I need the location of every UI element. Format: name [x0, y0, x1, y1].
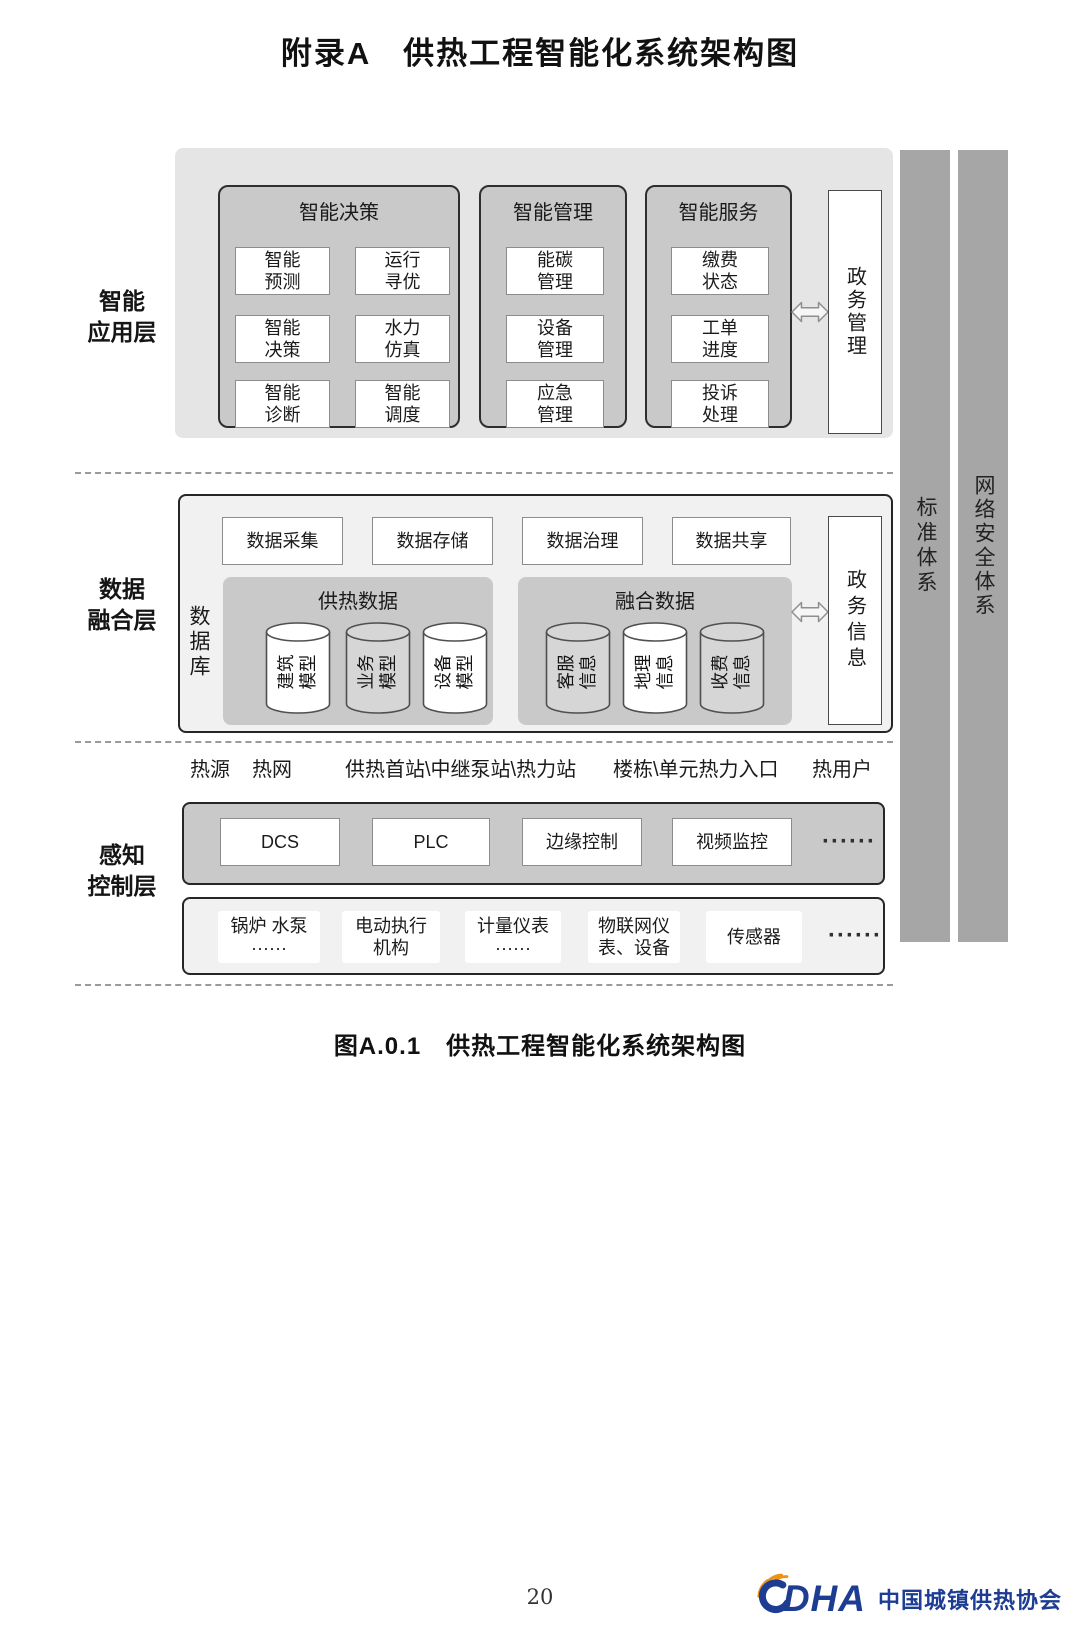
cylinder-label: 客服 信息: [546, 628, 610, 716]
database-label-wrap: 数据库: [184, 592, 212, 692]
group-title: 智能服务: [647, 187, 790, 225]
control-box-edge-control: 边缘控制: [522, 818, 642, 866]
device-ellipsis: ······: [828, 922, 882, 950]
application-layer-label: 智能 应用层: [72, 286, 172, 348]
page-title: 附录A 供热工程智能化系统架构图: [0, 28, 1080, 73]
double-arrow-shape: [792, 303, 828, 322]
cylinder-billing-info: 收费 信息: [697, 621, 767, 715]
cylinder-geographic-info: 地理 信息: [620, 621, 690, 715]
data-layer-label: 数据 融合层: [72, 574, 172, 636]
document-page: 附录A 供热工程智能化系统架构图 智能 应用层 智能决策 智能 预测 运行 寻优…: [0, 0, 1080, 1635]
app-box-smart-prediction: 智能 预测: [235, 247, 330, 295]
layer-divider: [75, 741, 893, 743]
figure-caption: 图A.0.1 供热工程智能化系统架构图: [0, 1026, 1080, 1061]
app-box-work-order-progress: 工单 进度: [671, 315, 769, 363]
data-box-storage: 数据存储: [372, 517, 493, 565]
database-label: 数据库: [183, 605, 213, 680]
group-intelligent-decision: 智能决策 智能 预测 运行 寻优 智能 决策 水力 仿真 智能 诊断 智能 调度: [218, 185, 460, 428]
gov-info-box: 政务信息: [828, 516, 882, 725]
logo-name: 中国城镇供热协会: [878, 1583, 1062, 1615]
network-security-label: 网络安全体系: [968, 474, 998, 618]
facility-heat-user: 热用户: [812, 753, 872, 782]
standard-system-label: 标准体系: [910, 496, 940, 596]
facility-heat-network: 热网: [252, 753, 292, 782]
device-box-electric-actuator: 电动执行 机构: [342, 911, 440, 963]
control-box-dcs: DCS: [220, 818, 340, 866]
association-logo: DHA 中国城镇供热协会: [752, 1556, 1062, 1628]
group-title: 智能决策: [220, 187, 458, 225]
cylinder-business-model: 业务 模型: [343, 621, 413, 715]
standard-system-bar: 标准体系: [900, 150, 950, 942]
group-intelligent-service: 智能服务 缴费 状态 工单 进度 投诉 处理: [645, 185, 792, 428]
double-arrow-icon: [791, 298, 829, 326]
cylinder-equipment-model: 设备 模型: [420, 621, 490, 715]
gov-info-label: 政务信息: [841, 569, 870, 673]
gov-management-box: 政务管理: [828, 190, 882, 434]
perception-layer-label: 感知 控制层: [72, 840, 172, 902]
group-title: 供热数据: [223, 577, 493, 614]
cylinder-label: 地理 信息: [623, 628, 687, 716]
device-box-sensor: 传感器: [706, 911, 802, 963]
cylinder-label: 业务 模型: [346, 628, 410, 716]
double-arrow-icon: [791, 598, 829, 626]
group-title: 融合数据: [518, 577, 792, 614]
cylinder-customer-service-info: 客服 信息: [543, 621, 613, 715]
app-box-hydraulic-simulation: 水力 仿真: [355, 315, 450, 363]
cylinder-label: 设备 模型: [423, 628, 487, 716]
group-intelligent-management: 智能管理 能碳 管理 设备 管理 应急 管理: [479, 185, 627, 428]
gov-management-label: 政务管理: [841, 266, 870, 358]
app-box-payment-status: 缴费 状态: [671, 247, 769, 295]
layer-divider: [75, 984, 893, 986]
facility-stations: 供热首站\中继泵站\热力站: [345, 753, 576, 782]
layer-divider: [75, 472, 893, 474]
app-box-emergency-management: 应急 管理: [506, 380, 604, 428]
data-box-sharing: 数据共享: [672, 517, 791, 565]
app-box-smart-diagnosis: 智能 诊断: [235, 380, 330, 428]
facility-heat-source: 热源: [190, 753, 230, 782]
device-box-boiler-pump: 锅炉 水泵 ······: [218, 911, 320, 963]
app-box-smart-decision: 智能 决策: [235, 315, 330, 363]
cylinder-label: 建筑 模型: [266, 628, 330, 716]
data-box-collection: 数据采集: [222, 517, 343, 565]
data-box-governance: 数据治理: [522, 517, 643, 565]
app-box-energy-carbon: 能碳 管理: [506, 247, 604, 295]
control-ellipsis: ······: [822, 828, 876, 856]
device-box-metering-instruments: 计量仪表 ······: [465, 911, 561, 963]
facility-building-entry: 楼栋\单元热力入口: [613, 753, 779, 782]
app-box-complaint-handling: 投诉 处理: [671, 380, 769, 428]
app-box-smart-dispatch: 智能 调度: [355, 380, 450, 428]
control-box-video-surveillance: 视频监控: [672, 818, 792, 866]
heating-data-group: 供热数据 建筑 模型 业务 模型 设备 模型: [223, 577, 493, 725]
group-title: 智能管理: [481, 187, 625, 225]
logo-acronym: DHA: [783, 1578, 866, 1620]
app-box-operation-optimization: 运行 寻优: [355, 247, 450, 295]
device-box-iot-devices: 物联网仪 表、设备: [588, 911, 680, 963]
cylinder-label: 收费 信息: [700, 628, 764, 716]
control-box-plc: PLC: [372, 818, 490, 866]
double-arrow-shape: [792, 603, 828, 622]
fusion-data-group: 融合数据 客服 信息 地理 信息 收费 信息: [518, 577, 792, 725]
app-box-equipment-management: 设备 管理: [506, 315, 604, 363]
network-security-bar: 网络安全体系: [958, 150, 1008, 942]
cylinder-building-model: 建筑 模型: [263, 621, 333, 715]
